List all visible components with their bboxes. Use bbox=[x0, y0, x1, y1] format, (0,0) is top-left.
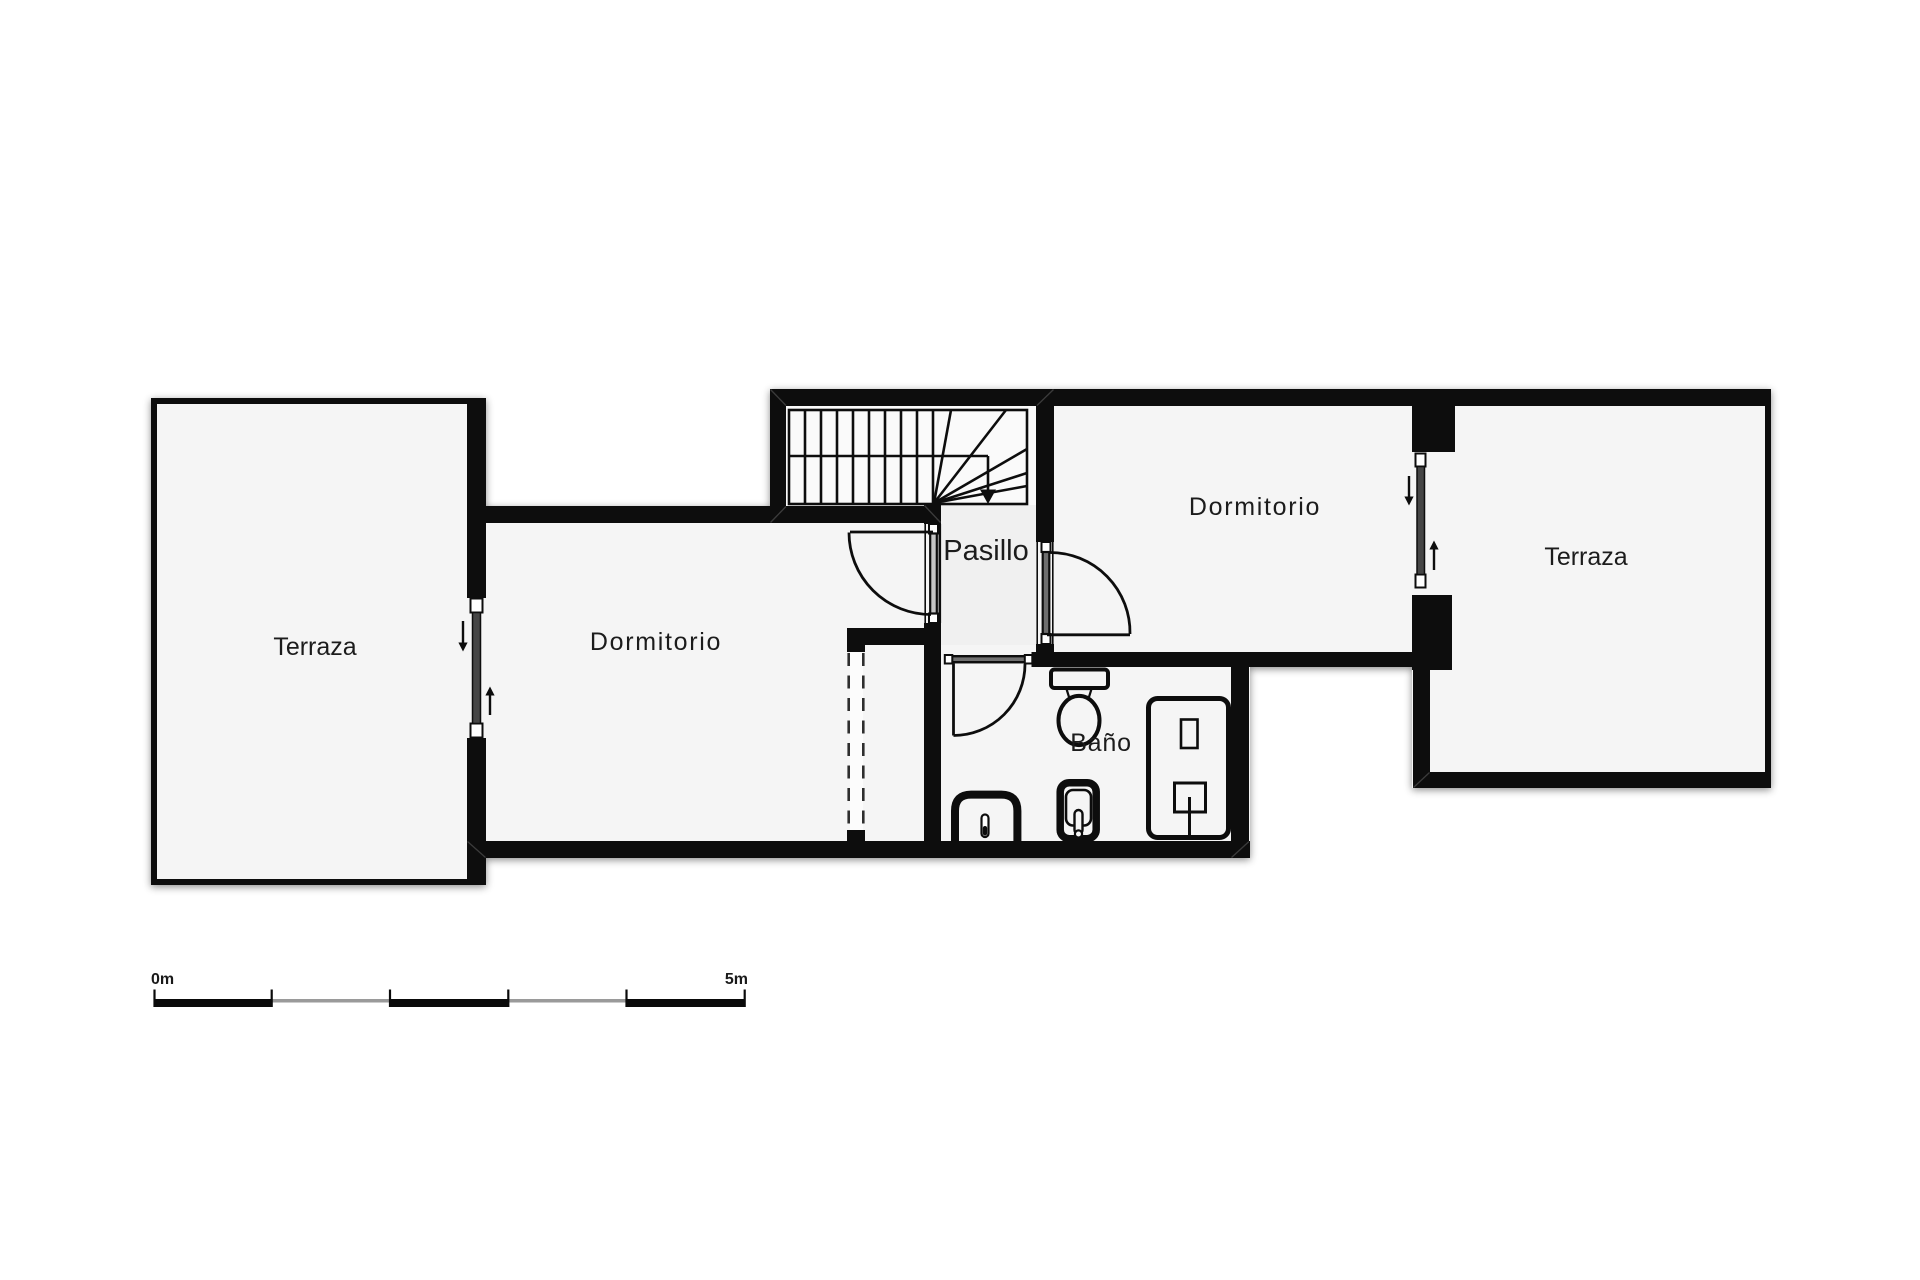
svg-text:Pasillo: Pasillo bbox=[943, 535, 1028, 567]
svg-text:Dormitorio: Dormitorio bbox=[1189, 493, 1321, 521]
svg-text:Terraza: Terraza bbox=[1544, 543, 1627, 571]
svg-text:0m: 0m bbox=[151, 971, 174, 988]
svg-text:Baño: Baño bbox=[1070, 729, 1132, 757]
svg-text:Dormitorio: Dormitorio bbox=[590, 628, 722, 656]
svg-text:Terraza: Terraza bbox=[273, 633, 356, 661]
svg-text:5m: 5m bbox=[725, 971, 748, 988]
